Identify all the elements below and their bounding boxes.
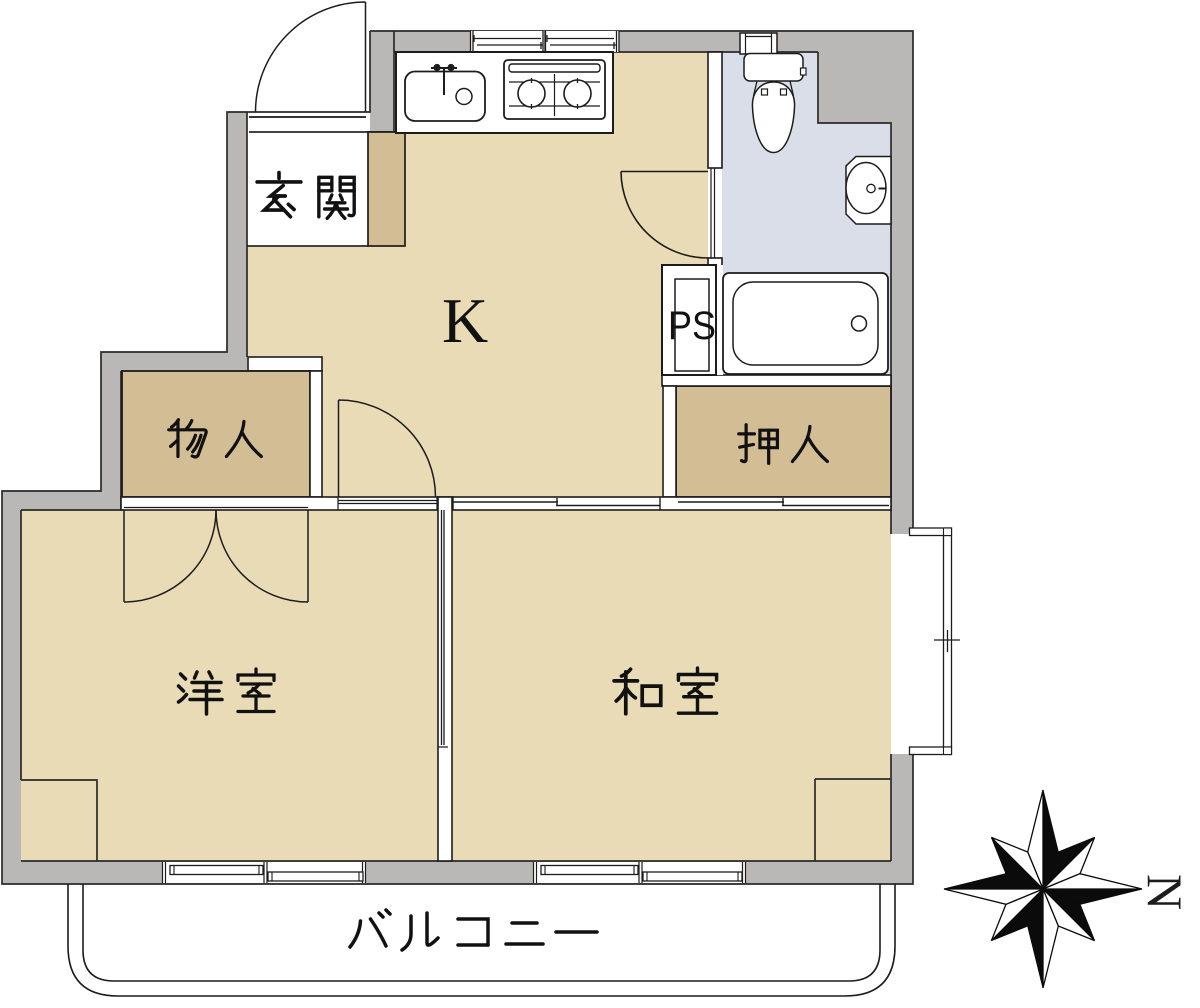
svg-text:N: N [1137, 874, 1193, 910]
svg-text:K: K [442, 285, 488, 356]
svg-text:PS: PS [668, 304, 716, 348]
